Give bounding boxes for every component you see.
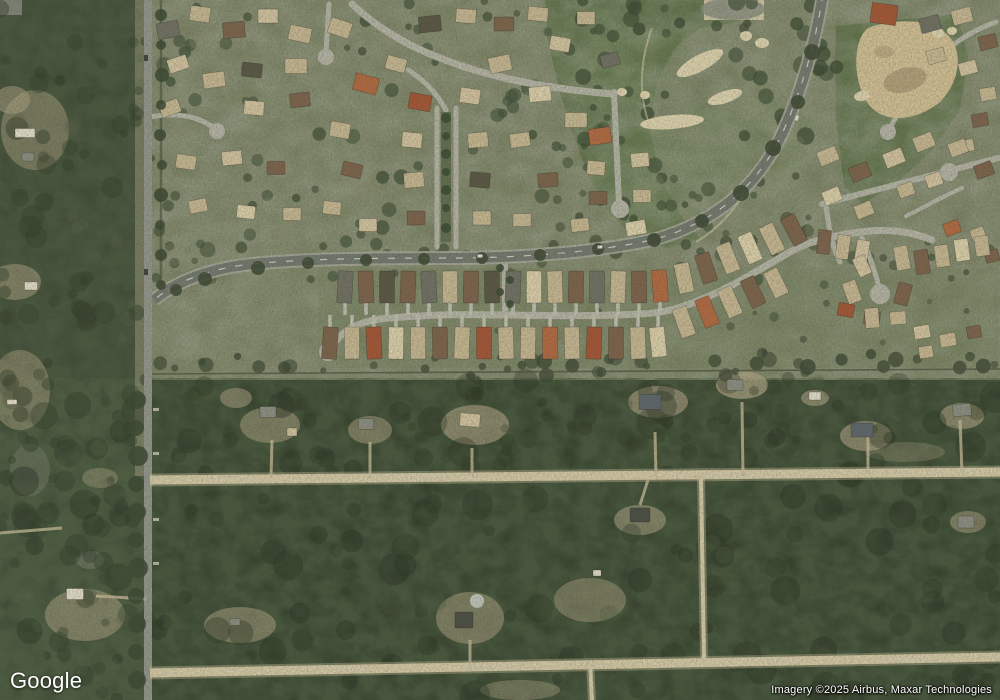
satellite-map-viewport[interactable]: Google Imagery ©2025 Airbus, Maxar Techn… bbox=[0, 0, 1000, 700]
imagery-attribution: Imagery ©2025 Airbus, Maxar Technologies bbox=[771, 684, 992, 696]
satellite-imagery bbox=[0, 0, 1000, 700]
google-logo[interactable]: Google bbox=[10, 668, 82, 694]
imagery-grain-layer bbox=[0, 0, 1000, 700]
